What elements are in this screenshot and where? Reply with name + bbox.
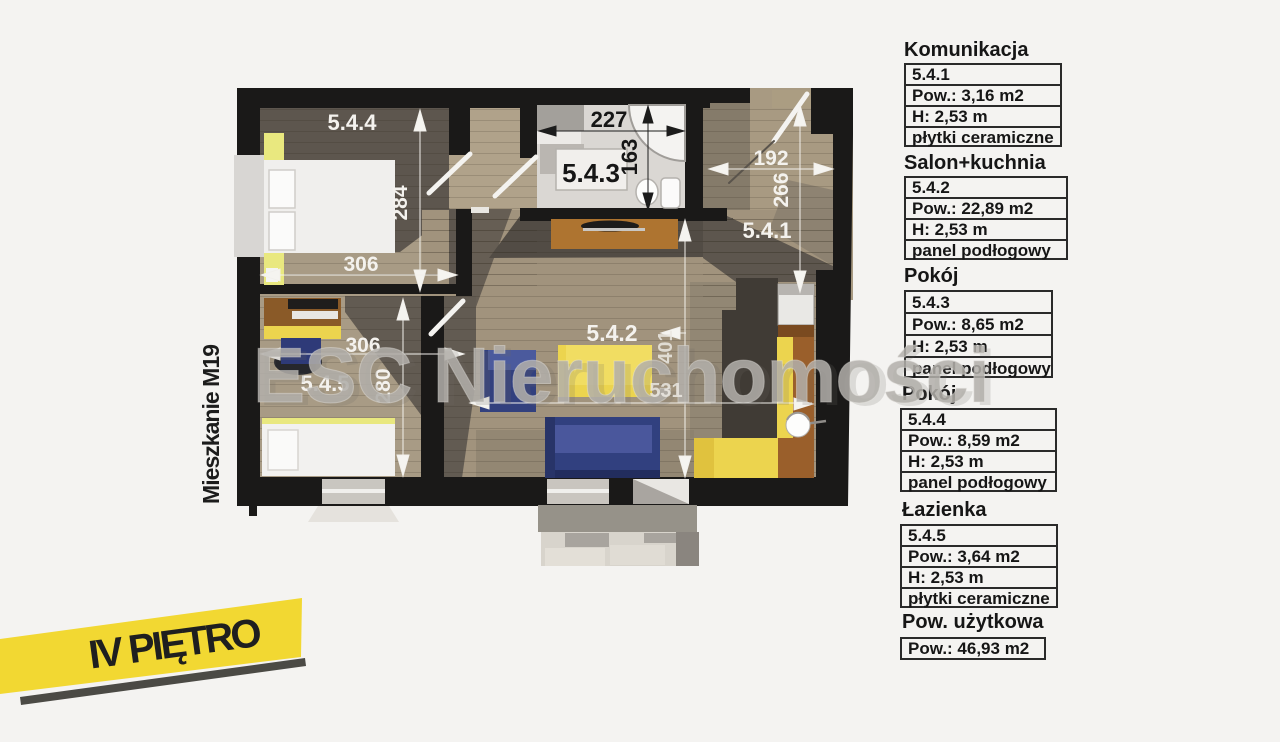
svg-text:227: 227 [591, 107, 628, 132]
svg-text:266: 266 [770, 172, 793, 207]
svg-text:284: 284 [389, 185, 412, 220]
svg-text:5.4.1: 5.4.1 [743, 218, 792, 243]
svg-text:531: 531 [649, 380, 682, 402]
svg-text:ESC Nieruchomości: ESC Nieruchomości [253, 331, 990, 419]
svg-text:5.4.4: 5.4.4 [328, 110, 378, 135]
svg-text:5.4.3: 5.4.3 [562, 158, 620, 188]
svg-text:306: 306 [343, 253, 378, 276]
svg-text:163: 163 [617, 139, 642, 176]
svg-text:Mieszkanie M19: Mieszkanie M19 [198, 344, 224, 504]
svg-text:401: 401 [655, 330, 677, 363]
svg-text:192: 192 [753, 147, 788, 170]
